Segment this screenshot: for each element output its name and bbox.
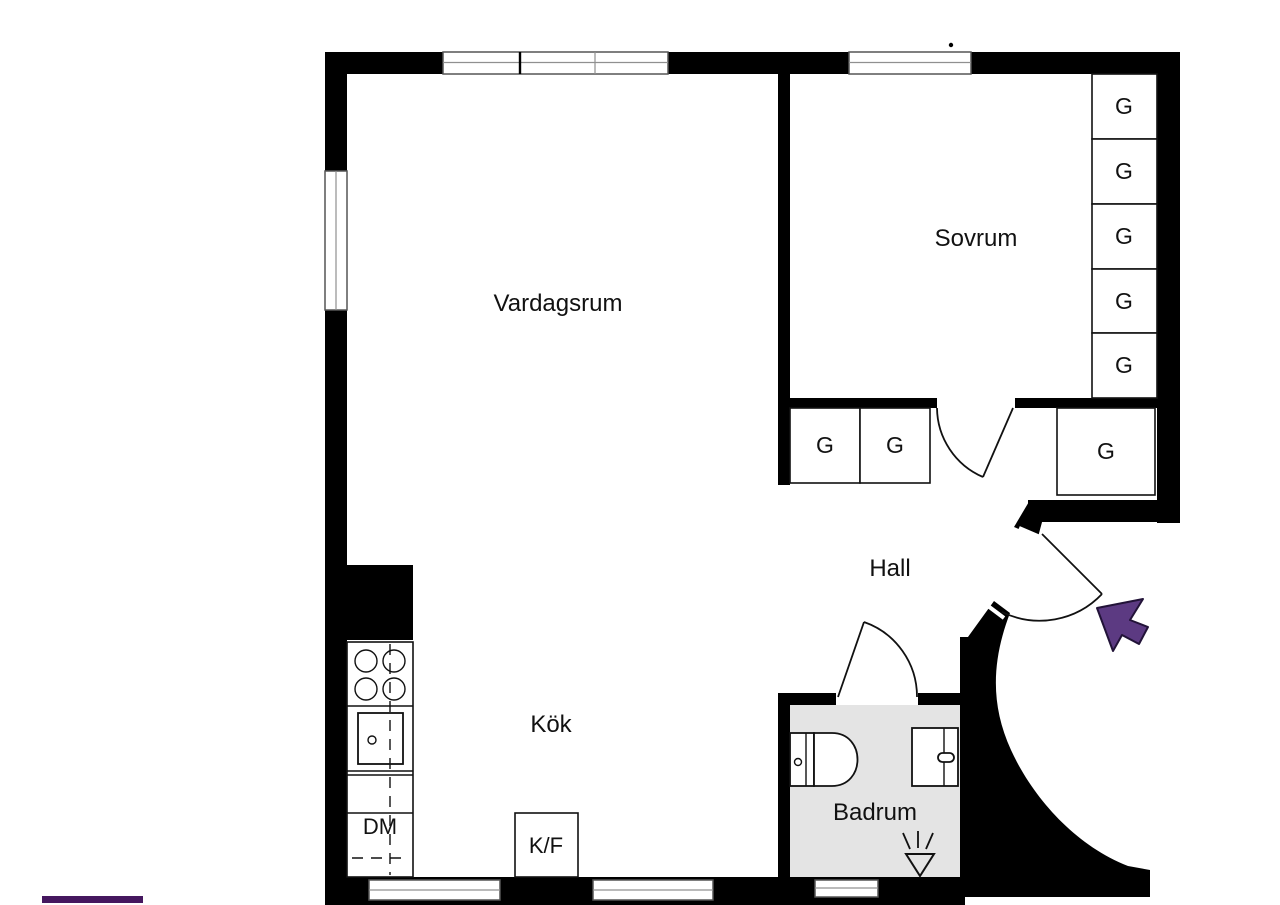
- window-top-bedroom: [849, 52, 971, 74]
- entrance-arrow-icon: [1097, 599, 1148, 651]
- floor-plan-page: Badrum G G G G G G G G: [0, 0, 1280, 905]
- brand-bar: [42, 896, 143, 903]
- room-label-bedroom: Sovrum: [935, 225, 1018, 252]
- window-bottom-kitchen-2: [593, 880, 713, 900]
- wall-livingroom-bedroom: [778, 74, 790, 485]
- wall-bedroom-hall-right: [1015, 398, 1157, 408]
- room-labels: Vardagsrum Sovrum Hall Kök: [494, 225, 1018, 738]
- wall-bathroom-top-right: [918, 693, 960, 705]
- door-bedroom: [937, 408, 1013, 477]
- room-label-bathroom: Badrum: [833, 799, 917, 826]
- closets: G G G G G G G G: [790, 74, 1157, 495]
- room-label-hall: Hall: [869, 555, 910, 582]
- wall-bedroom-hall-left: [778, 398, 937, 408]
- window-top-livingroom: [443, 52, 668, 74]
- room-label-livingroom: Vardagsrum: [494, 290, 623, 317]
- walls: [325, 52, 1180, 905]
- wall-right: [1157, 52, 1180, 523]
- wall-kitchen-chimney: [325, 565, 413, 640]
- wardrobe-label: G: [1115, 158, 1133, 184]
- wall-hall-closet: [1028, 500, 1180, 522]
- wardrobe-label: G: [1097, 438, 1115, 464]
- wall-bathroom-top-left: [778, 693, 836, 705]
- wardrobe-label: G: [1115, 352, 1133, 378]
- kitchen-fixtures: DM K/F: [347, 642, 578, 877]
- wardrobe-label: G: [1115, 288, 1133, 314]
- north-dot-mark: [949, 43, 953, 47]
- floor-plan-drawing: Badrum G G G G G G G G: [0, 0, 1280, 905]
- wardrobe-label: G: [1115, 93, 1133, 119]
- window-left-livingroom: [325, 171, 347, 310]
- toilet-icon: [790, 733, 858, 786]
- bathroom: Badrum: [790, 705, 960, 877]
- room-label-kitchen: Kök: [530, 711, 572, 738]
- fridge-freezer: K/F: [515, 813, 578, 877]
- dishwasher-label: DM: [363, 814, 397, 839]
- wall-curved-corner: [960, 601, 1150, 897]
- door-entrance: [988, 528, 1102, 621]
- window-bottom-bathroom: [815, 880, 878, 897]
- door-bathroom: [838, 622, 917, 697]
- washbasin-icon: [912, 728, 958, 786]
- wardrobe-label: G: [816, 432, 834, 458]
- window-bottom-kitchen-1: [369, 880, 500, 900]
- wall-bathroom-left: [778, 693, 790, 877]
- fridge-freezer-label: K/F: [529, 833, 563, 858]
- wardrobe-label: G: [886, 432, 904, 458]
- wardrobe-label: G: [1115, 223, 1133, 249]
